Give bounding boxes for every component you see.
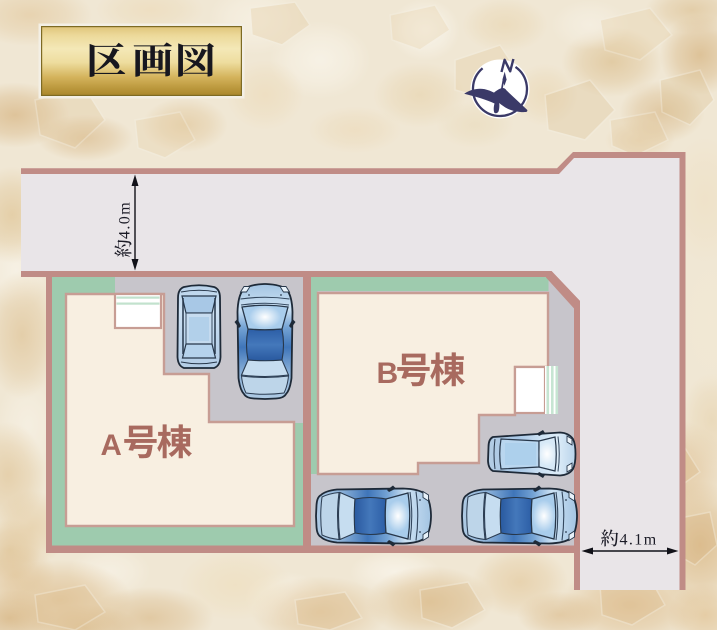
svg-text:4.1m: 4.1m: [620, 532, 658, 549]
svg-text:4.0m: 4.0m: [117, 201, 134, 239]
svg-text:A: A: [101, 429, 122, 462]
svg-text:B: B: [377, 357, 399, 390]
